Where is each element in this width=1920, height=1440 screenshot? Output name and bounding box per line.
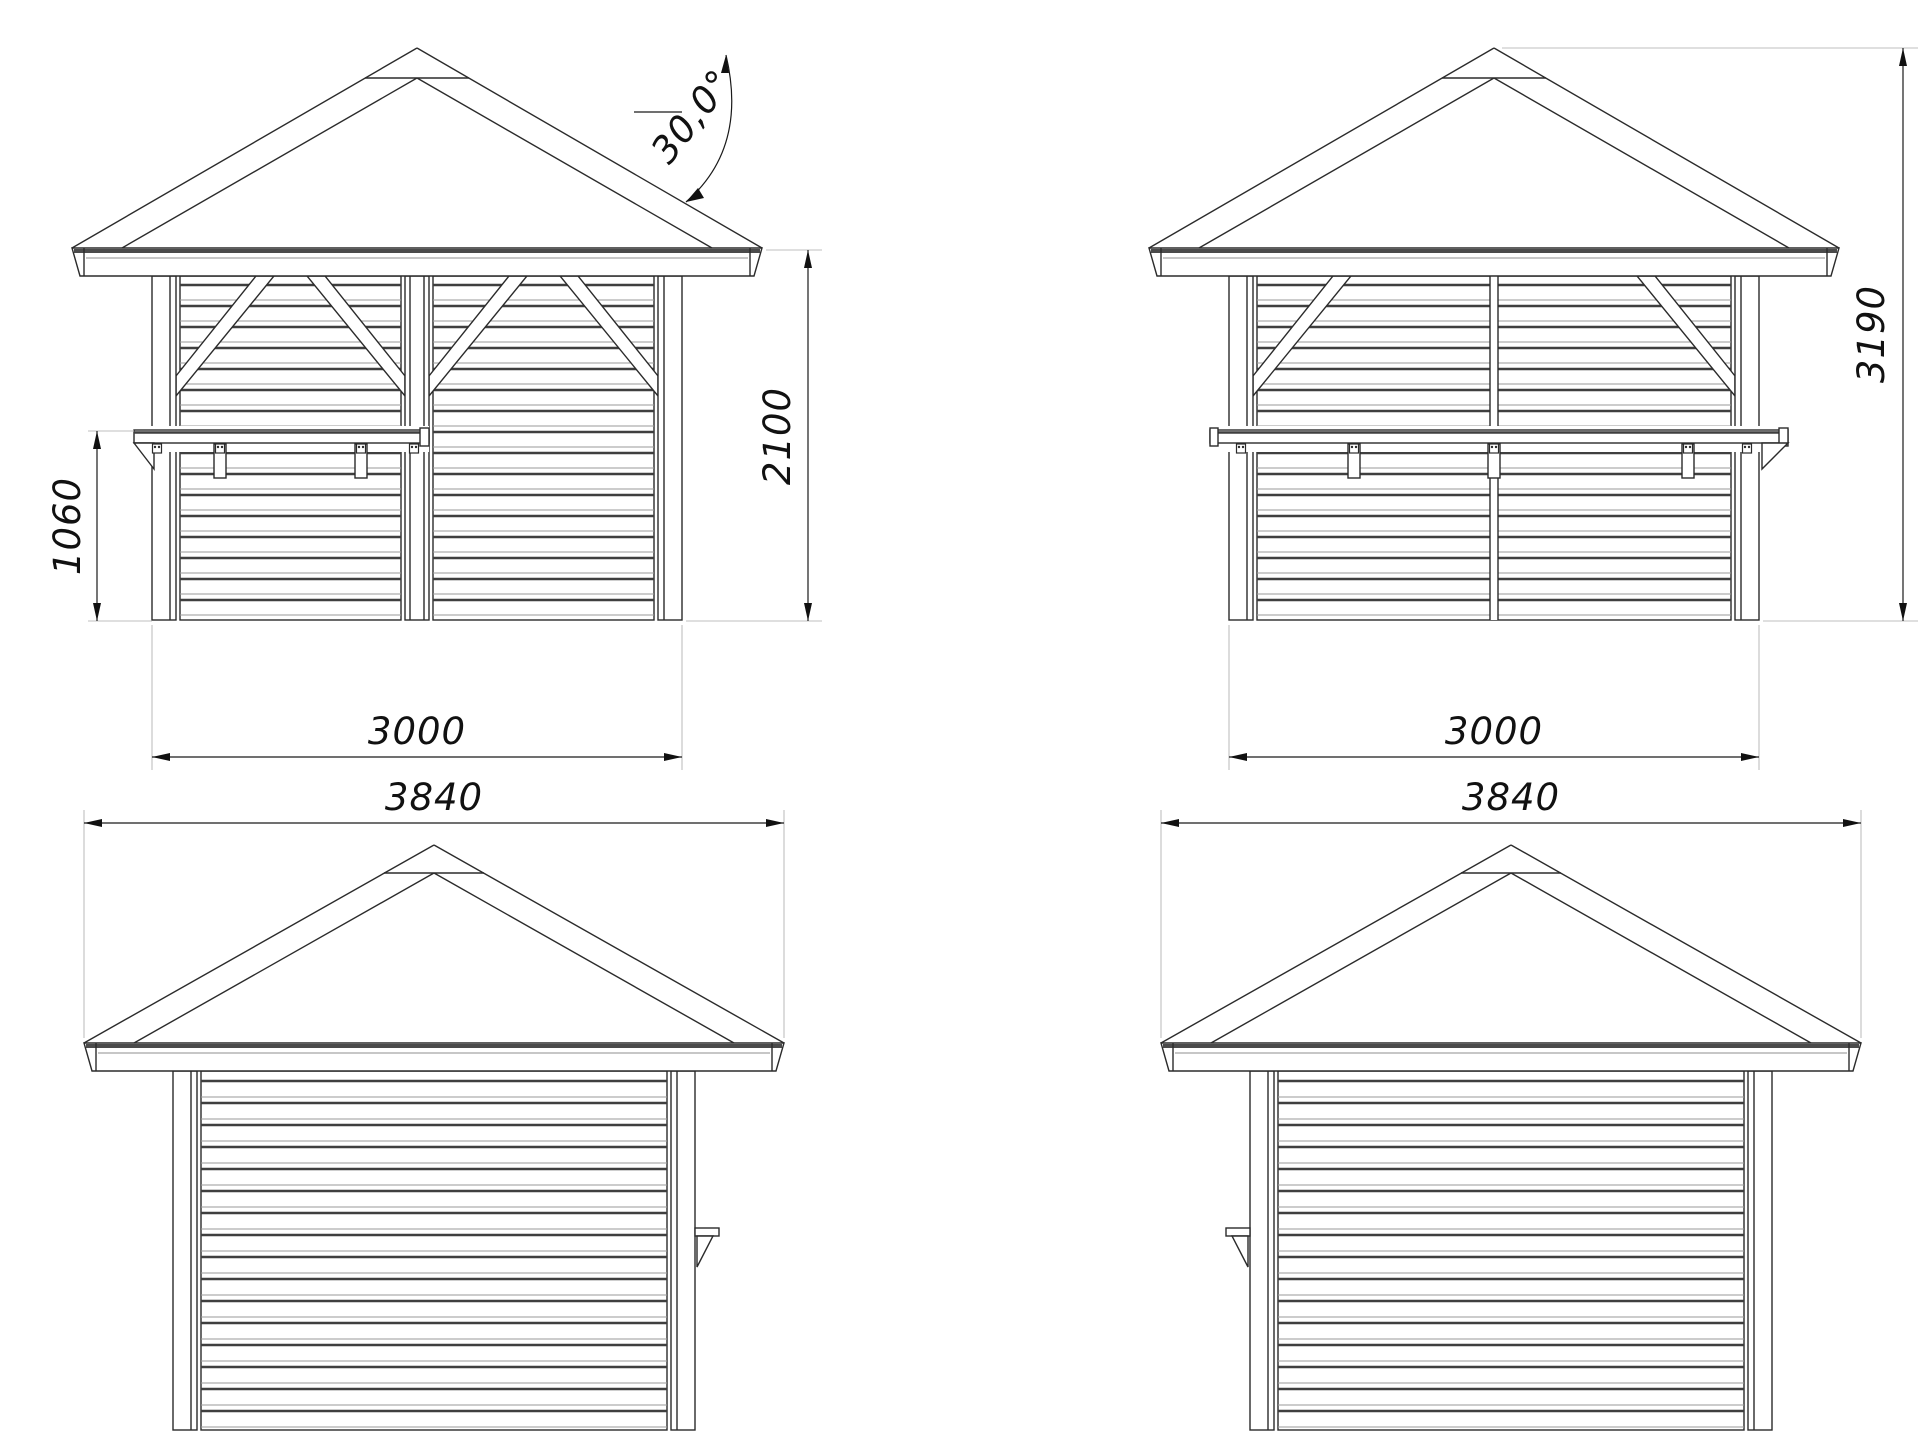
hip-roof — [84, 845, 784, 1071]
side-elevation-a: 3840 — [84, 776, 784, 1430]
counter-bracket — [1232, 1236, 1248, 1267]
dim-total-height-label: 3190 — [1850, 285, 1893, 383]
knee-brace — [176, 276, 274, 396]
dimension-1060: 1060 — [46, 431, 152, 621]
gazebo-elevation-drawing: 1060 2100 3000 30,0° — [0, 0, 1920, 1440]
counter-bracket — [697, 1236, 713, 1267]
dim-eave-height-label: 2100 — [756, 387, 799, 485]
dimension-roof-angle: 30,0° — [634, 55, 742, 202]
counter-clip — [1490, 444, 1499, 453]
technical-drawing-sheet: 1060 2100 3000 30,0° — [0, 0, 1920, 1440]
knee-brace — [307, 276, 405, 396]
dimension-3840-b: 3840 — [1161, 776, 1861, 1038]
knee-brace — [560, 276, 658, 396]
hip-roof — [72, 48, 762, 276]
side-elevation-b: 3840 — [1161, 776, 1861, 1430]
counter-end-profile — [695, 1228, 719, 1267]
dimension-3840-a: 3840 — [84, 776, 784, 1038]
counter-clip — [1237, 444, 1246, 453]
dim-width-label: 3000 — [1445, 710, 1543, 753]
counter-clip — [216, 444, 225, 453]
post-right — [658, 276, 682, 620]
knee-brace — [1637, 276, 1735, 396]
counter-end-profile — [1226, 1228, 1250, 1267]
dim-roof-angle-label: 30,0° — [643, 61, 742, 171]
slat-cladding — [1278, 1081, 1744, 1427]
counter-clip — [153, 444, 162, 453]
counter-support-bracket — [1762, 443, 1788, 469]
dim-counter-height-label: 1060 — [46, 477, 89, 575]
dim-roof-width-label: 3840 — [385, 776, 483, 819]
roof-inner-slopes — [122, 78, 712, 248]
counter-lip — [1226, 1228, 1250, 1236]
slat-cladding — [201, 1081, 667, 1427]
roof-inner-slopes — [134, 873, 734, 1043]
knee-brace — [429, 276, 527, 396]
roof-outer-slopes — [84, 845, 784, 1043]
dimension-3000-a: 3000 — [152, 625, 682, 770]
counter-end-cap — [420, 428, 429, 446]
counter-clip — [1743, 444, 1752, 453]
dimension-3000-b: 3000 — [1229, 625, 1759, 770]
dim-roof-width-label: 3840 — [1462, 776, 1560, 819]
front-elevation-a: 1060 2100 3000 30,0° — [46, 48, 822, 770]
post-left — [1250, 1071, 1274, 1430]
hip-roof — [1149, 48, 1839, 276]
counter-lip — [695, 1228, 719, 1236]
dimension-3190: 3190 — [1502, 48, 1918, 621]
counter-clip — [410, 444, 419, 453]
roof-inner-slopes — [1211, 873, 1811, 1043]
counter-clip — [1684, 444, 1693, 453]
front-elevation-b: 3190 3000 — [1149, 48, 1918, 770]
serving-counter — [134, 426, 429, 478]
hip-roof — [1161, 845, 1861, 1071]
dimension-2100: 2100 — [686, 250, 822, 621]
dim-width-label: 3000 — [368, 710, 466, 753]
counter-support-bracket — [134, 443, 154, 469]
roof-outer-slopes — [1161, 845, 1861, 1043]
counter-end-cap — [1210, 428, 1218, 446]
post-right — [671, 1071, 695, 1430]
counter-clip — [1350, 444, 1359, 453]
post-right — [1748, 1071, 1772, 1430]
roof-inner-slopes — [1199, 78, 1789, 248]
post-left — [173, 1071, 197, 1430]
counter-clip — [357, 444, 366, 453]
knee-brace — [1253, 276, 1351, 396]
